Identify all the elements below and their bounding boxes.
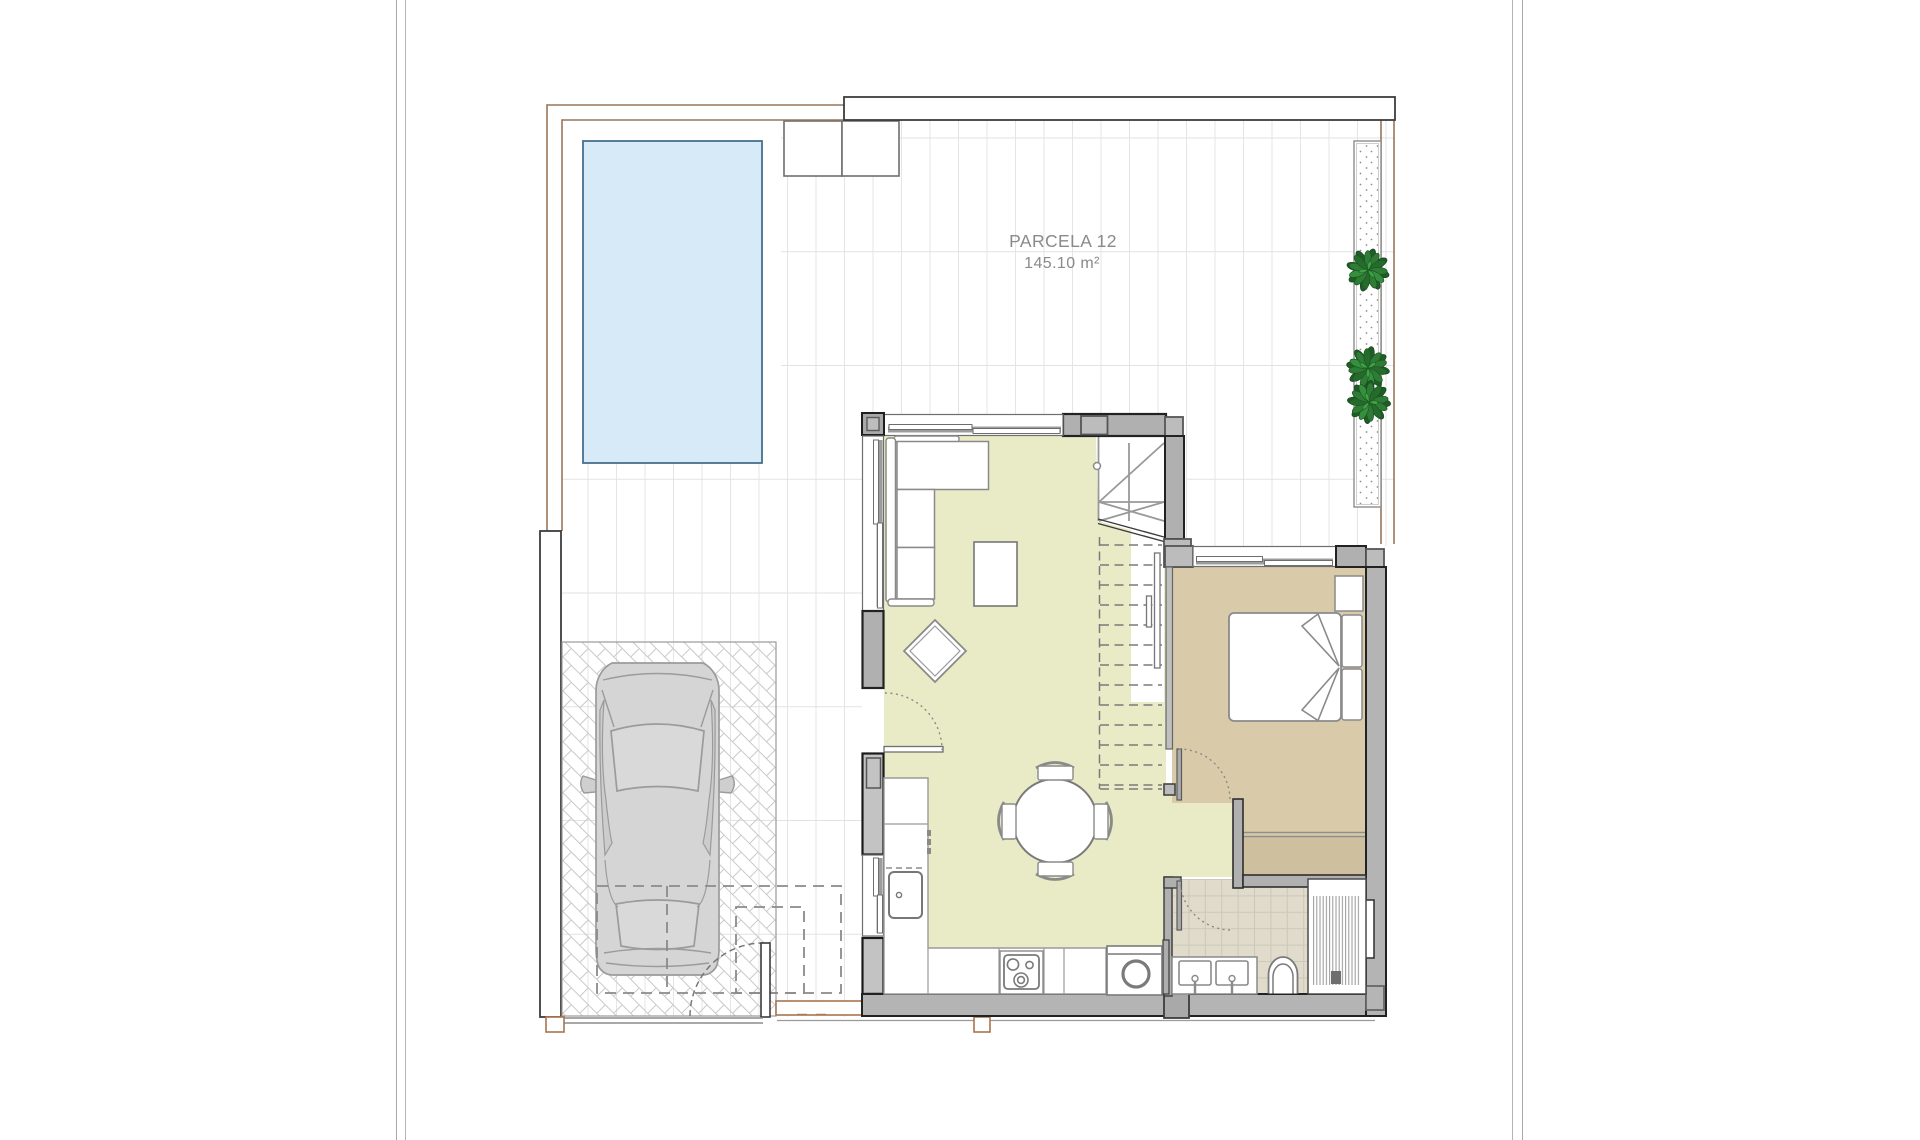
svg-text:PARCELA 12: PARCELA 12 — [1009, 231, 1117, 251]
svg-text:145.10 m²: 145.10 m² — [1024, 255, 1100, 272]
